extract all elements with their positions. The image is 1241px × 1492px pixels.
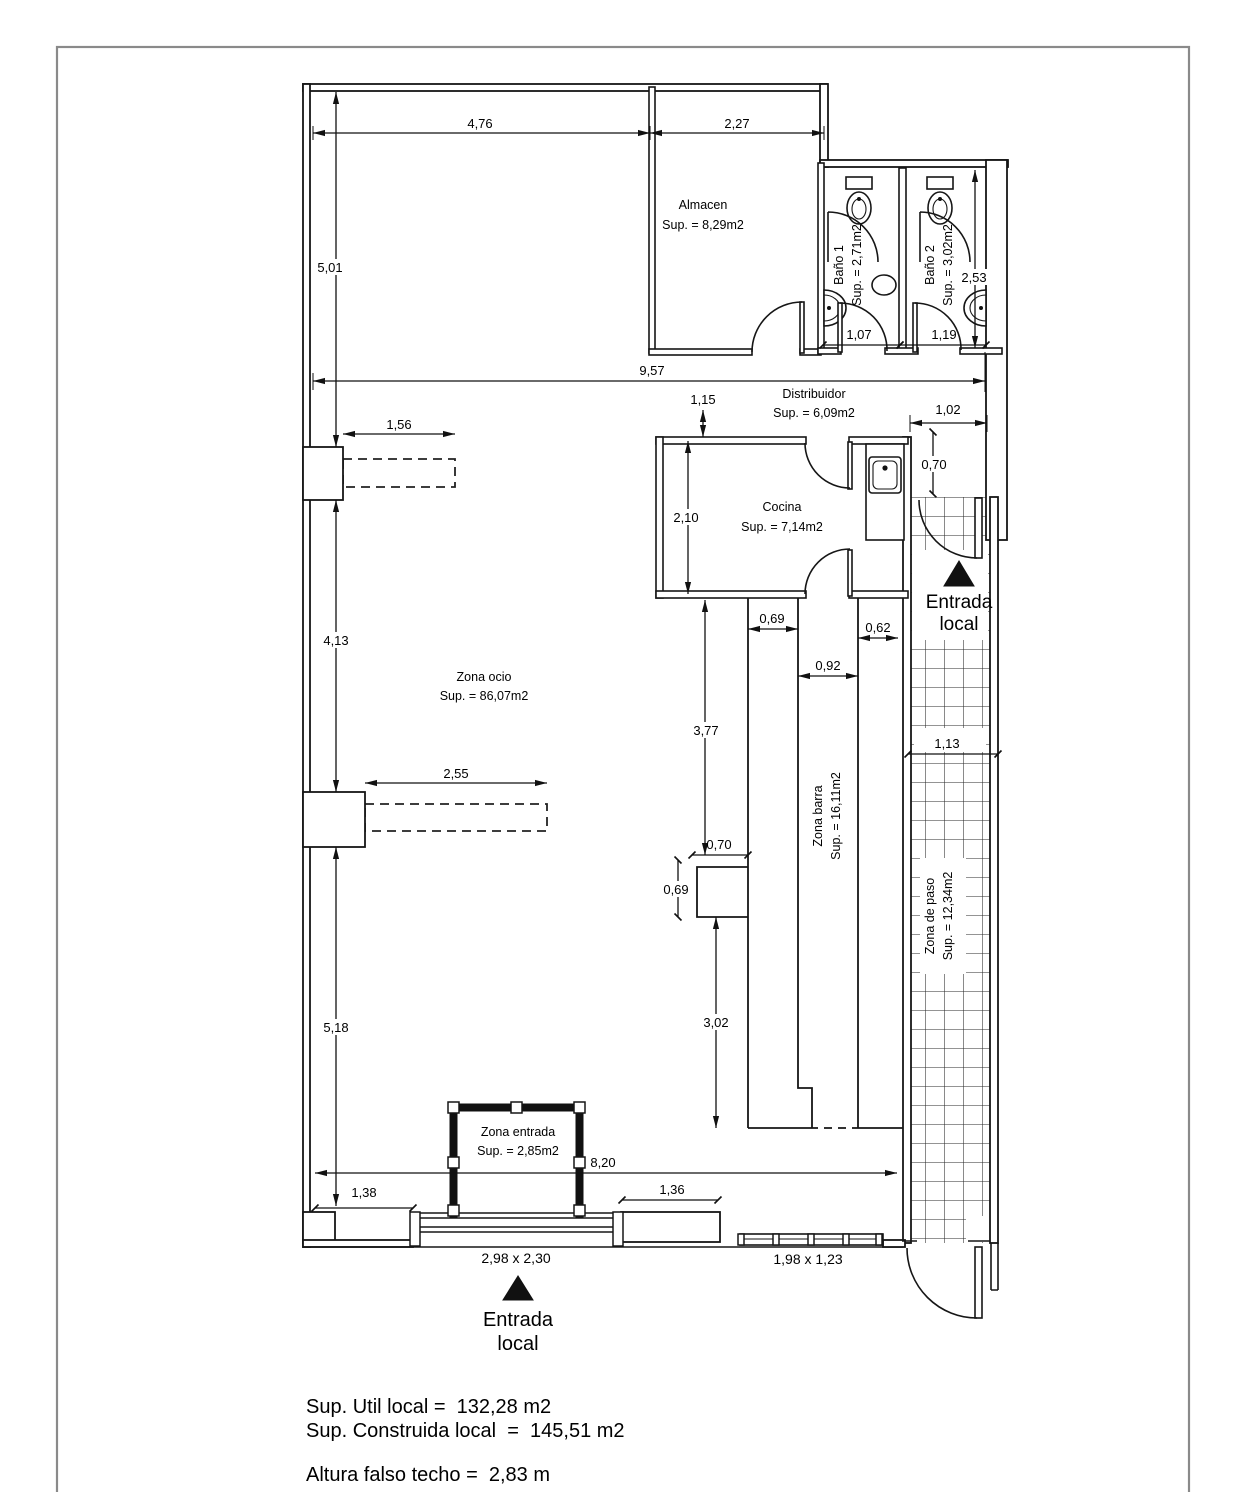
room-label-cocina: Cocina: [763, 500, 802, 514]
dim-bar-aisle: 0,92: [815, 658, 840, 673]
floor-plan-drawing: 4,76 2,27 5,01 4,13 5,18 9,57 1,15 1,02 …: [0, 0, 1241, 1492]
dim-left-lower: 5,18: [323, 1020, 348, 1035]
door-cocina-top: [805, 442, 852, 489]
dim-top-left: 4,76: [467, 116, 492, 131]
room-sup-zona-paso: Sup. = 12,34m2: [941, 872, 955, 961]
room-sup-bano1: Sup. = 2,71m2: [850, 224, 864, 306]
dim-bath-depth: 2,53: [961, 270, 986, 285]
dim-distribuidor-depth: 1,15: [690, 392, 715, 407]
dim-bano2-width: 1,19: [931, 327, 956, 342]
door-exit-bottom: [907, 1247, 982, 1318]
window-band: [738, 1234, 883, 1245]
summary-util: Sup. Util local = 132,28 m2: [306, 1396, 551, 1418]
room-label-zona-paso: Zona de paso: [923, 878, 937, 954]
entrance-arrow-icon-bottom: [503, 1276, 533, 1300]
dim-recess1: 1,56: [386, 417, 411, 432]
entry-vestibule: [448, 1102, 585, 1217]
room-sup-almacen: Sup. = 8,29m2: [662, 218, 744, 232]
walls: [303, 84, 1008, 1290]
dim-bar-top-gap: 0,69: [759, 611, 784, 626]
window-size-label: 1,98 x 1,23: [773, 1251, 842, 1267]
sheet-border: [57, 47, 1189, 1492]
room-sup-cocina: Sup. = 7,14m2: [741, 520, 823, 534]
entrance-right-line1: Entrada: [926, 592, 993, 613]
dim-left-middle: 4,13: [323, 633, 348, 648]
dim-bottom-left: 1,38: [351, 1185, 376, 1200]
dim-bar-upper-length: 3,77: [693, 723, 718, 738]
dim-bar-step-width: 0,70: [706, 837, 731, 852]
room-labels: Almacen Sup. = 8,29m2 Distribuidor Sup. …: [440, 198, 955, 1158]
dim-corridor-width: 1,13: [934, 736, 959, 751]
dim-top-right: 2,27: [724, 116, 749, 131]
room-label-zona-ocio: Zona ocio: [457, 670, 512, 684]
room-label-bano2-group: Baño 2 Sup. = 3,02m2: [923, 224, 955, 306]
door-almacen: [752, 302, 804, 353]
room-label-zona-barra-group: Zona barra Sup. = 16,11m2: [811, 772, 843, 860]
room-sup-zona-barra: Sup. = 16,11m2: [829, 772, 843, 860]
toilet-bano2: [927, 177, 953, 224]
entrance-bottom-line2: local: [497, 1333, 538, 1355]
kitchen-sink: [866, 444, 904, 540]
room-sup-zona-ocio: Sup. = 86,07m2: [440, 689, 529, 703]
entrance-bottom-line1: Entrada: [483, 1309, 554, 1331]
room-sup-zona-entrada: Sup. = 2,85m2: [477, 1144, 559, 1158]
dim-interior-width: 9,57: [639, 363, 664, 378]
room-sup-distribuidor: Sup. = 6,09m2: [773, 406, 855, 420]
room-label-almacen: Almacen: [679, 198, 728, 212]
dim-passage-door: 0,70: [921, 457, 946, 472]
dim-counter-width: 0,62: [865, 620, 890, 635]
dim-passage-width: 1,02: [935, 402, 960, 417]
dim-bar-step-height: 0,69: [663, 882, 688, 897]
dim-bottom-right: 1,36: [659, 1182, 684, 1197]
room-label-bano2: Baño 2: [923, 245, 937, 285]
dim-bano1-width: 1,07: [846, 327, 871, 342]
dim-left-upper: 5,01: [317, 260, 342, 275]
dim-bar-lower-length: 3,02: [703, 1015, 728, 1030]
summary-block: Sup. Util local = 132,28 m2 Sup. Constru…: [306, 1396, 625, 1486]
summary-altura: Altura falso techo = 2,83 m: [306, 1464, 550, 1486]
room-label-distribuidor: Distribuidor: [782, 387, 845, 401]
room-sup-bano2: Sup. = 3,02m2: [941, 224, 955, 306]
dim-bottom-span: 8,20: [590, 1155, 615, 1170]
bar-counter: [697, 598, 903, 1128]
room-label-zona-barra: Zona barra: [811, 785, 825, 846]
entrance-bottom: Entrada local: [483, 1276, 554, 1355]
storefront-size-label: 2,98 x 2,30: [481, 1250, 550, 1266]
door-cocina-bottom: [805, 549, 852, 596]
entrance-right-line2: local: [939, 614, 978, 635]
room-label-bano1: Baño 1: [832, 245, 846, 285]
floor-plan-sheet: 4,76 2,27 5,01 4,13 5,18 9,57 1,15 1,02 …: [0, 0, 1241, 1492]
fixture-oval: [872, 275, 896, 295]
dim-cocina-depth: 2,10: [673, 510, 698, 525]
room-label-zona-entrada: Zona entrada: [481, 1125, 555, 1139]
dim-recess2: 2,55: [443, 766, 468, 781]
summary-construida: Sup. Construida local = 145,51 m2: [306, 1420, 625, 1442]
